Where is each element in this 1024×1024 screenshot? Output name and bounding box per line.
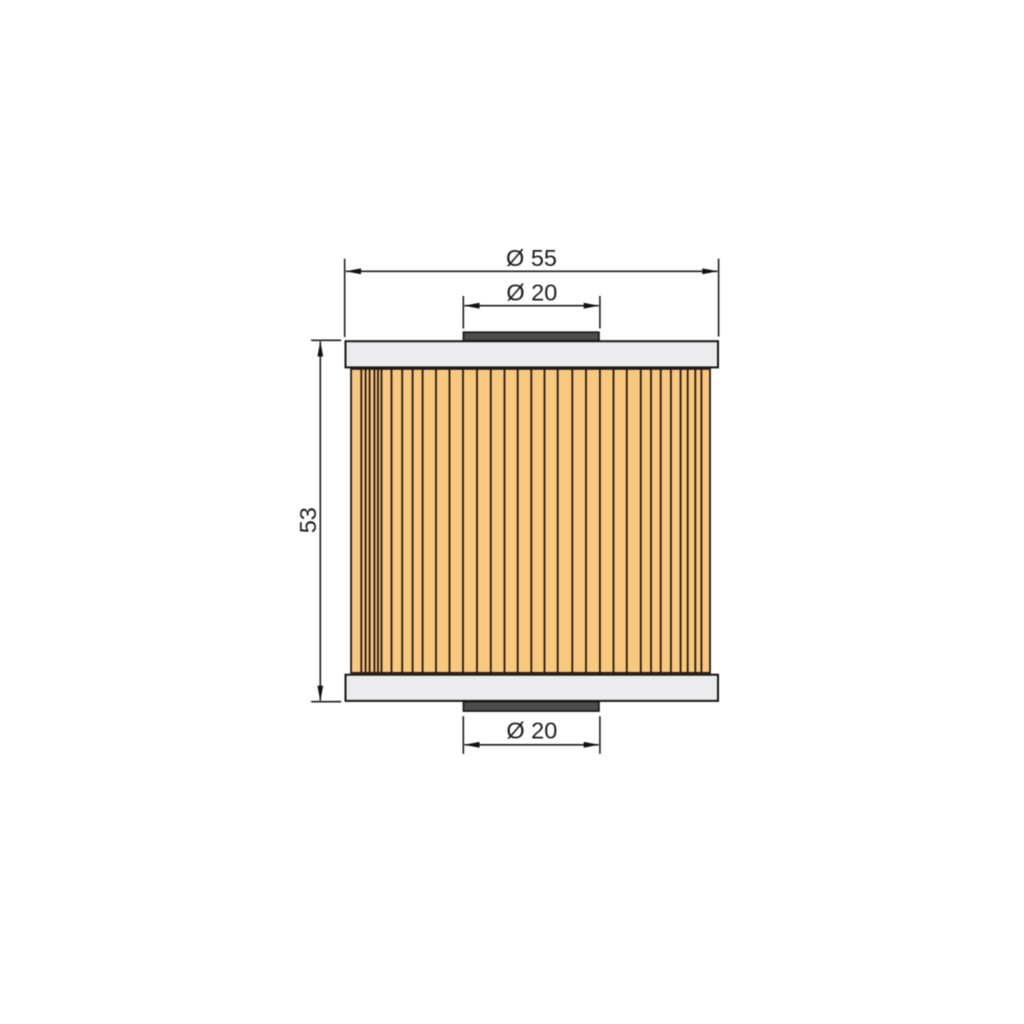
svg-text:Ø 55: Ø 55 <box>506 245 557 271</box>
svg-text:Ø 20: Ø 20 <box>506 717 557 743</box>
svg-text:53: 53 <box>295 507 321 533</box>
svg-text:Ø 20: Ø 20 <box>506 279 557 305</box>
